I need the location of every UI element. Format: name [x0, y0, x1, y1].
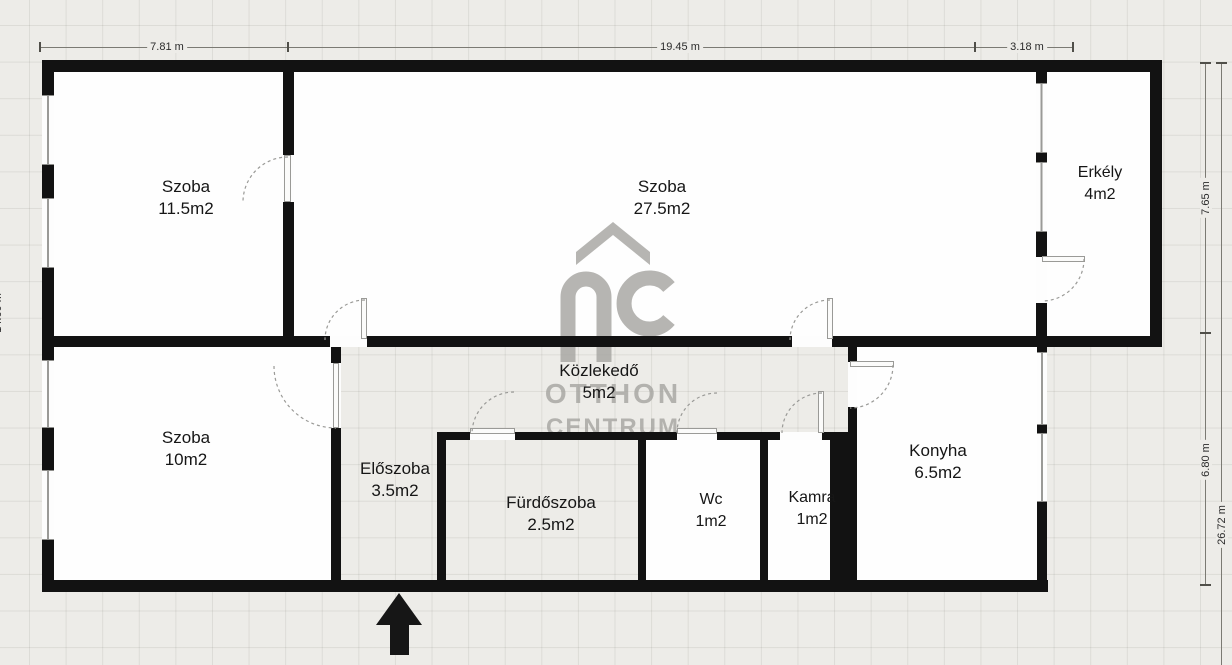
dim-label-top-1: 7.81 m [147, 41, 187, 53]
door-arc [1042, 259, 1084, 301]
dim-label-right-3: 26.72 m [1216, 502, 1228, 548]
dim-tick [39, 42, 41, 52]
door-arc [274, 366, 336, 428]
room-label-wc: Wc 1m2 [695, 489, 726, 533]
room-label-szoba-2: Szoba 27.5m2 [634, 176, 691, 220]
room-name: Konyha [909, 440, 967, 462]
room-label-erkely: Erkély 4m2 [1078, 162, 1122, 206]
dim-label-top-3: 3.18 m [1007, 41, 1047, 53]
room-area: 5m2 [559, 382, 638, 404]
door-arc [677, 393, 717, 433]
entrance-arrow-stem [390, 624, 409, 655]
room-area: 2.5m2 [506, 514, 596, 536]
room-name: Kamra [788, 487, 835, 509]
dim-line-top-2 [288, 47, 975, 48]
room-label-kozlekedo: Közlekedő 5m2 [559, 360, 638, 404]
dim-tick [1200, 584, 1211, 586]
door-swing-arcs [0, 0, 1232, 665]
room-label-szoba-1: Szoba 11.5m2 [158, 176, 213, 220]
room-label-konyha: Konyha 6.5m2 [909, 440, 967, 484]
door-arc [325, 300, 365, 340]
door-arc [782, 393, 822, 433]
door-arc [790, 300, 830, 340]
room-area: 27.5m2 [634, 198, 691, 220]
room-name: Előszoba [360, 458, 430, 480]
entrance-arrow-icon [376, 593, 422, 625]
room-area: 1m2 [695, 511, 726, 533]
room-name: Szoba [162, 427, 210, 449]
room-name: Wc [695, 489, 726, 511]
room-label-eloszoba: Előszoba 3.5m2 [360, 458, 430, 502]
room-area: 10m2 [162, 449, 210, 471]
room-label-furdoszoba: Fürdőszoba 2.5m2 [506, 492, 596, 536]
room-name: Szoba [158, 176, 213, 198]
dim-label-right-2: 6.80 m [1200, 440, 1212, 480]
dim-label-top-2: 19.45 m [657, 41, 703, 53]
dim-tick [1216, 62, 1227, 64]
room-area: 3.5m2 [360, 480, 430, 502]
room-label-szoba-3: Szoba 10m2 [162, 427, 210, 471]
dim-tick [287, 42, 289, 52]
dim-tick [1200, 332, 1211, 334]
room-name: Szoba [634, 176, 691, 198]
room-name: Fürdőszoba [506, 492, 596, 514]
door-arc [472, 392, 514, 434]
floor-plan: OC OTTHON CENTRUM [0, 0, 1232, 665]
door-arc [850, 365, 893, 408]
dim-tick [974, 42, 976, 52]
room-label-kamra: Kamra 1m2 [788, 487, 835, 531]
room-area: 11.5m2 [158, 198, 213, 220]
room-area: 4m2 [1078, 184, 1122, 206]
dim-label-left-1: 14.60 m [0, 290, 4, 336]
room-name: Közlekedő [559, 360, 638, 382]
room-name: Erkély [1078, 162, 1122, 184]
room-area: 1m2 [788, 509, 835, 531]
dim-tick [1072, 42, 1074, 52]
dim-line-right-3 [1221, 63, 1222, 665]
dim-label-right-1: 7.65 m [1200, 178, 1212, 218]
door-arc [243, 157, 288, 202]
dim-tick [1200, 62, 1211, 64]
room-area: 6.5m2 [909, 462, 967, 484]
